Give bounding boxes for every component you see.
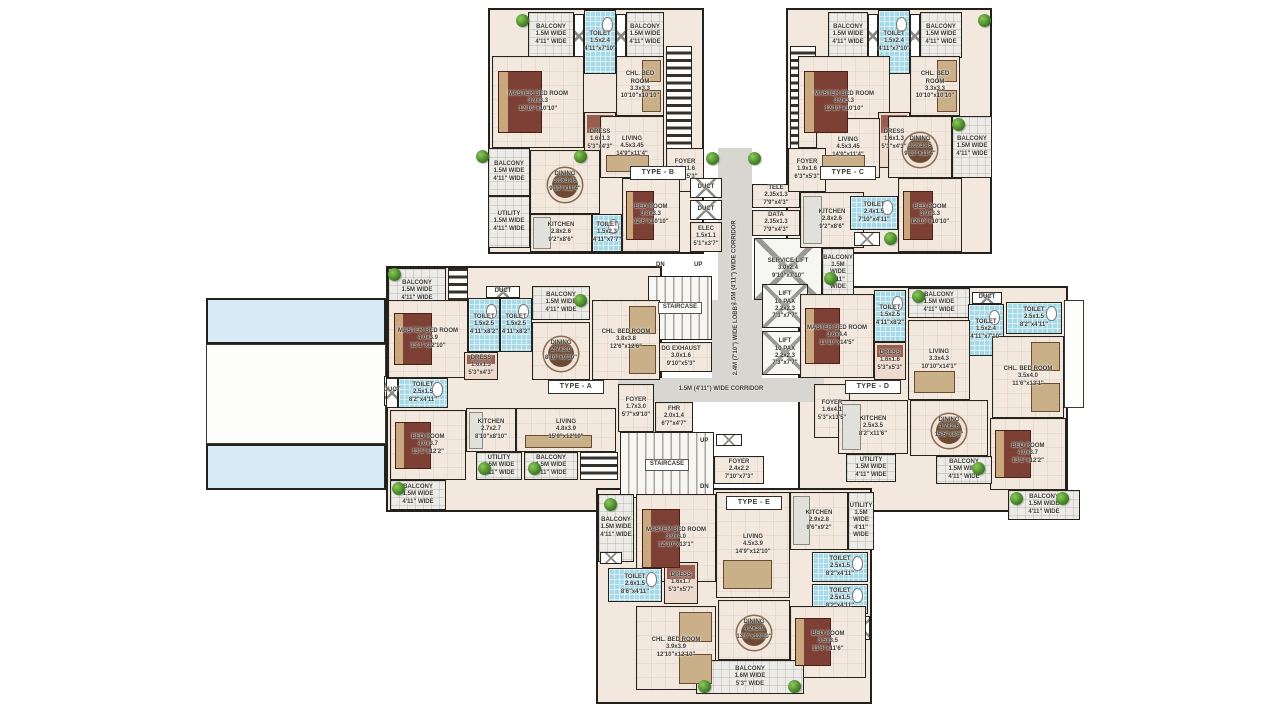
d-toilet-2-label: TOILET 1.5x2.4 4'11"x7'10" xyxy=(970,319,1002,341)
e-dress-label: DRESS 1.6x1.7 5'3"x5'7" xyxy=(668,572,693,594)
planter-icon xyxy=(476,150,489,163)
d-bed-room: BED ROOM 4.0x3.7 13'1"x12'2" xyxy=(990,418,1066,490)
c-master-bed-room-label: MASTER BED ROOM 3.9x3.3 12'10"x10'10" xyxy=(814,91,874,113)
a-bed-room: BED ROOM 4.0x3.7 13'1"x12'2" xyxy=(390,410,466,480)
d-toilet-1: TOILET 1.5x2.5 4'11"x8'2" xyxy=(874,290,906,342)
core-foyer-e-label: FOYER 2.4x2.2 7'10"x7'3" xyxy=(725,459,754,481)
a-balcony-bottom-2-label: BALCONY 1.5M WIDE 4'11" WIDE xyxy=(402,484,433,506)
planter-icon xyxy=(912,290,925,303)
a-chl-bed-room-label: CHL. BED ROOM 3.8x3.8 12'6"x12'6" xyxy=(602,329,651,351)
d-kitchen: KITCHEN 2.5x3.5 8'2"x11'6" xyxy=(838,400,908,454)
c-bed-room-label: BED ROOM 3.9x3.3 12'10"x10'10" xyxy=(911,204,950,226)
a-dining-label: DINING 2.7x3.0 8'10"x9'10" xyxy=(545,340,577,362)
core-elec: ELEC 1.5x1.1 5'1"x3'7" xyxy=(690,222,722,252)
stair-direction-label: UP xyxy=(700,438,708,444)
core-lift-1-label: LIFT 10 PAX 2.2x2.3 7'3"x7'7" xyxy=(772,291,797,320)
a-foyer-label: FOYER 1.7x3.0 5'7"x9'10" xyxy=(622,397,651,419)
c-balcony-top-left-label: BALCONY 1.5M WIDE 4'11" WIDE xyxy=(832,24,863,46)
c-balcony-right-label: BALCONY 1.5M WIDE 4'11" WIDE xyxy=(956,136,987,158)
c-toilet-2-label: TOILET 2.4x1.5 7'10"x4'11" xyxy=(858,202,890,224)
a-stair-hatch xyxy=(580,452,618,480)
e-living-label: LIVING 4.5x3.9 14'9"x12'10" xyxy=(735,534,770,556)
a-duct-top: DUCT xyxy=(486,286,520,298)
d-foyer-label: FOYER 1.6x4.1 5'3"x13'5" xyxy=(818,400,847,422)
a-dining: DINING 2.7x3.0 8'10"x9'10" xyxy=(532,322,590,380)
e-toilet-left-label: TOILET 2.6x1.5 8'6"x4'11" xyxy=(621,574,649,596)
core-duct-3 xyxy=(716,434,742,446)
e-dress: DRESS 1.6x1.7 5'3"x5'7" xyxy=(664,562,698,604)
terrace-strip-bottom xyxy=(206,444,386,490)
c-balcony-top-right: BALCONY 1.5M WIDE 4'11" WIDE xyxy=(920,12,962,58)
d-living: LIVING 3.3x4.3 10'10"x14'1" xyxy=(908,320,970,400)
core-data: DATA 2.35x1.3 7'9"x4'3" xyxy=(752,210,800,236)
b-balcony-top-right: BALCONY 1.5M WIDE 4'11" WIDE xyxy=(626,12,664,58)
d-master-bed-room-label: MASTER BED ROOM 3.6x4.4 11'10"x14'5" xyxy=(807,325,867,347)
tag-type-d-label: TYPE - D xyxy=(857,383,890,392)
e-kitchen-label: KITCHEN 2.9x2.8 9'6"x9'2" xyxy=(806,510,833,532)
a-toilet-2-label: TOILET 1.5x2.5 4'11"x8'2" xyxy=(502,314,530,336)
c-balcony-top-right-label: BALCONY 1.5M WIDE 4'11" WIDE xyxy=(925,24,956,46)
stair-direction-label: DN xyxy=(700,484,709,490)
core-data-label: DATA 2.35x1.3 7'9"x4'3" xyxy=(763,212,788,234)
a-living-label: LIVING 4.8x3.9 15'9"x12'10" xyxy=(548,419,583,441)
planter-icon xyxy=(788,680,801,693)
c-toilet-2: TOILET 2.4x1.5 7'10"x4'11" xyxy=(850,196,898,230)
planter-icon xyxy=(824,272,837,285)
d-dining: DINING 4.7x2.6 15'5"x8'6" xyxy=(910,400,988,456)
d-duct-top-label: DUCT xyxy=(979,294,996,301)
d-toilet-1-label: TOILET 1.5x2.5 4'11"x8'2" xyxy=(876,305,904,327)
core-lift-2-label: LIFT 10 PAX 2.2x2.3 7'3"x7'7" xyxy=(772,338,797,367)
c-chl-bed-room: CHL. BED ROOM 3.3x3.3 10'10"x10'10" xyxy=(910,56,960,116)
planter-icon xyxy=(884,232,897,245)
b-escape-stair xyxy=(666,46,692,150)
terrace-strip-top xyxy=(206,298,386,344)
b-balcony-top-right-label: BALCONY 1.5M WIDE 4'11" WIDE xyxy=(629,24,660,46)
tag-type-a-label: TYPE - A xyxy=(560,383,593,392)
d-utility: UTILITY 1.5M WIDE 4'11" WIDE xyxy=(846,454,896,482)
planter-icon xyxy=(516,14,529,27)
stair-direction-label: UP xyxy=(694,262,702,268)
b-chl-bed-room: CHL. BED ROOM 3.3x3.3 10'10"x10'10" xyxy=(616,56,664,116)
d-bed-room-label: BED ROOM 4.0x3.7 13'1"x12'2" xyxy=(1012,443,1045,465)
a-kitchen-label: KITCHEN 2.7x2.7 8'10"x8'10" xyxy=(475,419,507,441)
e-toilet-left: TOILET 2.6x1.5 8'6"x4'11" xyxy=(608,568,662,602)
a-toilet-1: TOILET 1.5x2.5 4'11"x8'2" xyxy=(468,298,500,352)
b-kitchen-label: KITCHEN 2.8x2.6 9'2"x8'6" xyxy=(548,222,575,244)
a-foyer: FOYER 1.7x3.0 5'7"x9'10" xyxy=(618,384,654,432)
a-master-bed-room: MASTER BED ROOM 4.0x3.9 13'1"x12'10" xyxy=(388,300,468,378)
terrace-duct-label: DUCT xyxy=(384,387,401,394)
c-duct-2 xyxy=(910,14,920,58)
c-dining-label: DINING 3.0x3.45 9'10"x11'4" xyxy=(904,136,936,158)
a-balcony-top-2-label: BALCONY 1.5M WIDE 4'11" WIDE xyxy=(545,292,576,314)
a-toilet-3: TOILET 2.5x1.5 8'2"x4'11" xyxy=(398,378,448,408)
a-master-bed-room-label: MASTER BED ROOM 4.0x3.9 13'1"x12'10" xyxy=(398,328,458,350)
e-master-bed-room-label: MASTER BED ROOM 3.9x4.0 12'10"x13'1" xyxy=(646,527,706,549)
c-bed-room: BED ROOM 3.9x3.3 12'10"x10'10" xyxy=(898,178,962,252)
b-toilet-top: TOILET 1.5x2.4 4'11"x7'10" xyxy=(584,10,616,74)
core-fhr-label: FHR 2.0x1.4 6'7"x4'7" xyxy=(661,406,686,428)
c-duct-1 xyxy=(868,14,878,58)
floor-plan: DUCT1.5M (4'11") WIDE CORRIDOR2.4M (7'10… xyxy=(0,0,1280,720)
planter-icon xyxy=(706,152,719,165)
core-service-lift-label: SERVICE LIFT 3.0x2.4 9'10"x7'10" xyxy=(768,258,809,280)
e-utility: UTILITY 1.5M WIDE 4'11" WIDE xyxy=(848,492,874,550)
a-living: LIVING 4.8x3.9 15'9"x12'10" xyxy=(516,408,616,452)
wc-furniture-icon xyxy=(602,17,613,32)
d-toilet-3: TOILET 2.5x1.5 8'2"x4'11" xyxy=(1006,302,1062,334)
c-chl-bed-room-label: CHL. BED ROOM 3.3x3.3 10'10"x10'10" xyxy=(911,71,959,100)
b-bed-room-label: BED ROOM 3.8x3.3 12'6"x10'10" xyxy=(633,204,668,226)
b-duct-1 xyxy=(574,14,584,58)
b-master-bed-room-label: MASTER BED ROOM 3.9x3.3 12'10"x10'10" xyxy=(508,91,568,113)
a-balcony-top-1-label: BALCONY 1.5M WIDE 4'11" WIDE xyxy=(401,280,432,302)
c-living-label: LIVING 4.5x3.45 14'9"x11'4" xyxy=(832,137,864,159)
tag-type-b-label: TYPE - B xyxy=(642,169,675,178)
tag-type-e-label: TYPE - E xyxy=(738,499,770,508)
tag-type-d: TYPE - D xyxy=(845,380,901,394)
tag-type-e: TYPE - E xyxy=(726,496,782,510)
planter-icon xyxy=(1010,492,1023,505)
c-duct-3 xyxy=(854,232,880,246)
core-staircase-top-label: STAIRCASE xyxy=(658,302,702,313)
c-foyer-label: FOYER 1.9x1.6 6'3"x5'3" xyxy=(794,159,819,181)
tag-type-c-label: TYPE - C xyxy=(832,169,865,178)
d-balcony-bottom-2-label: BALCONY 1.5M WIDE 4'11" WIDE xyxy=(1028,494,1059,516)
b-toilet-2: TOILET 1.5x2.3 4'11"x7'7" xyxy=(592,214,622,252)
d-dress-label: DRESS 1.6x1.6 5'3"x5'3" xyxy=(877,350,902,372)
b-toilet-top-label: TOILET 1.5x2.4 4'11"x7'10" xyxy=(584,31,616,53)
d-utility-label: UTILITY 1.5M WIDE 4'11" WIDE xyxy=(855,457,886,479)
tag-type-a: TYPE - A xyxy=(548,380,604,394)
core-elec-label: ELEC 1.5x1.1 5'1"x3'7" xyxy=(693,226,718,248)
core-duct-2-label: DUCT xyxy=(698,206,715,213)
planter-icon xyxy=(574,150,587,163)
wc-furniture-icon xyxy=(896,17,907,32)
b-balcony-left-label: BALCONY 1.5M WIDE 4'11" WIDE xyxy=(493,161,524,183)
b-utility-label: UTILITY 1.5M WIDE 4'11" WIDE xyxy=(493,211,524,233)
planter-icon xyxy=(478,462,491,475)
planter-icon xyxy=(574,294,587,307)
e-toilet-right-2-label: TOILET 2.5x1.5 8'2"x4'11" xyxy=(826,588,854,610)
corridor-horizontal-label: 1.5M (4'11") WIDE CORRIDOR xyxy=(679,386,764,393)
b-master-bed-room: MASTER BED ROOM 3.9x3.3 12'10"x10'10" xyxy=(492,56,584,148)
planter-icon xyxy=(604,498,617,511)
core-duct-2: DUCT xyxy=(690,200,722,220)
core-duct-1: DUCT xyxy=(690,178,722,198)
e-toilet-right-1-label: TOILET 2.5x1.5 8'2"x4'11" xyxy=(826,556,854,578)
lobby-label: 2.4M (7'10") WIDE LOBBY xyxy=(733,302,740,375)
planter-icon xyxy=(528,462,541,475)
b-duct-2 xyxy=(616,14,626,58)
planter-icon xyxy=(972,462,985,475)
d-balcony-top-label: BALCONY 1.5M WIDE 4'11" WIDE xyxy=(923,292,954,314)
d-chl-bed-room-label: CHL. BED ROOM 3.5x4.0 11'6"x13'1" xyxy=(1004,366,1053,388)
a-bed-room-label: BED ROOM 4.0x3.7 13'1"x12'2" xyxy=(412,434,445,456)
e-toilet-right-1: TOILET 2.5x1.5 8'2"x4'11" xyxy=(812,552,868,582)
d-dining-label: DINING 4.7x2.6 15'5"x8'6" xyxy=(935,417,964,439)
b-living-label: LIVING 4.5x3.45 14'9"x11'4" xyxy=(616,136,648,158)
planter-icon xyxy=(388,268,401,281)
b-toilet-2-label: TOILET 1.5x2.3 4'11"x7'7" xyxy=(593,222,621,244)
b-chl-bed-room-label: CHL. BED ROOM 3.3x3.3 10'10"x10'10" xyxy=(617,71,663,100)
b-dress-label: DRESS 1.6x1.3 5'3"x4'3" xyxy=(587,129,612,151)
core-dg-exhaust-label: DG EXHAUST 3.0x1.6 9'10"x5'3" xyxy=(661,346,700,368)
c-balcony-top-left: BALCONY 1.5M WIDE 4'11" WIDE xyxy=(828,12,868,58)
b-dining-label: DINING 3.0x3.45 9'10"x11'4" xyxy=(549,171,581,193)
sofa-furniture-icon xyxy=(723,560,773,589)
e-kitchen: KITCHEN 2.9x2.8 9'6"x9'2" xyxy=(790,492,848,550)
a-toilet-3-label: TOILET 2.5x1.5 8'2"x4'11" xyxy=(409,382,437,404)
e-bed-room-label: BED ROOM 3.5x3.5 11'6"x11'6" xyxy=(812,631,845,653)
d-living-label: LIVING 3.3x4.3 10'10"x14'1" xyxy=(921,349,956,371)
planter-icon xyxy=(1056,492,1069,505)
planter-icon xyxy=(952,118,965,131)
d-chl-bed-room: CHL. BED ROOM 3.5x4.0 11'6"x13'1" xyxy=(992,336,1064,418)
c-dress-label: DRESS 1.6x1.3 5'3"x4'3" xyxy=(881,129,906,151)
c-toilet-top-label: TOILET 1.5x2.4 4'11"x7'10" xyxy=(878,31,910,53)
d-kitchen-label: KITCHEN 2.5x3.5 8'2"x11'6" xyxy=(859,416,887,438)
e-chl-bed-room: CHL. BED ROOM 3.9x3.9 12'10"x12'10" xyxy=(636,606,716,690)
a-dress-label: DRESS 1.6x1.3 5'3"x4'3" xyxy=(468,355,493,377)
b-balcony-left: BALCONY 1.5M WIDE 4'11" WIDE xyxy=(488,148,530,196)
b-kitchen: KITCHEN 2.8x2.6 9'2"x8'6" xyxy=(530,214,592,252)
d-duct-top: DUCT xyxy=(972,292,1002,304)
e-duct-left xyxy=(600,552,622,564)
terrace-mid xyxy=(206,344,386,444)
b-balcony-top-left-label: BALCONY 1.5M WIDE 4'11" WIDE xyxy=(535,24,566,46)
e-chl-bed-room-label: CHL. BED ROOM 3.9x3.9 12'10"x12'10" xyxy=(652,637,701,659)
e-balcony-left-label: BALCONY 1.5M WIDE 4'11" WIDE xyxy=(600,517,631,539)
core-duct-1-label: DUCT xyxy=(698,184,715,191)
core-staircase-bottom-label: STAIRCASE xyxy=(645,459,689,470)
planter-icon xyxy=(392,482,405,495)
d-toilet-3-label: TOILET 2.5x1.5 8'2"x4'11" xyxy=(1020,307,1048,329)
e-dining-label: DINING 4.2x3.9 13'9"x12'10" xyxy=(736,619,771,641)
b-utility: UTILITY 1.5M WIDE 4'11" WIDE xyxy=(488,196,530,248)
planter-icon xyxy=(748,152,761,165)
a-toilet-1-label: TOILET 1.5x2.5 4'11"x8'2" xyxy=(470,314,498,336)
planter-icon xyxy=(978,14,991,27)
sofa-furniture-icon xyxy=(914,371,956,393)
core-tele-label: TELE 2.35x1.3 7'9"x4'3" xyxy=(763,185,788,207)
c-kitchen-label: KITCHEN 2.8x2.6 9'2"x8'6" xyxy=(819,209,846,231)
e-dining: DINING 4.2x3.9 13'9"x12'10" xyxy=(718,600,790,660)
core-foyer-e: FOYER 2.4x2.2 7'10"x7'3" xyxy=(714,456,764,484)
a-dress: DRESS 1.6x1.3 5'3"x4'3" xyxy=(464,352,498,380)
d-terrace-right xyxy=(1064,300,1084,408)
tag-type-c: TYPE - C xyxy=(820,166,876,180)
a-kitchen: KITCHEN 2.7x2.7 8'10"x8'10" xyxy=(466,408,516,452)
planter-icon xyxy=(698,680,711,693)
b-bed-room: BED ROOM 3.8x3.3 12'6"x10'10" xyxy=(622,178,680,252)
d-dress: DRESS 1.6x1.6 5'3"x5'3" xyxy=(874,342,906,380)
a-chl-bed-room: CHL. BED ROOM 3.8x3.8 12'6"x12'6" xyxy=(592,300,660,380)
d-master-bed-room: MASTER BED ROOM 3.6x4.4 11'10"x14'5" xyxy=(800,294,874,378)
e-utility-label: UTILITY 1.5M WIDE 4'11" WIDE xyxy=(849,503,873,540)
b-dining: DINING 3.0x3.45 9'10"x11'4" xyxy=(530,150,600,214)
stair-direction-label: DN xyxy=(656,262,665,268)
core-fhr: FHR 2.0x1.4 6'7"x4'7" xyxy=(655,402,693,432)
b-balcony-top-left: BALCONY 1.5M WIDE 4'11" WIDE xyxy=(528,12,574,58)
e-balcony-bottom-label: BALCONY 1.6M WIDE 5'3" WIDE xyxy=(735,666,766,688)
lobby: 2.4M (7'10") WIDE LOBBY xyxy=(712,300,762,378)
corridor-vertical-label: 1.5M (4'11") WIDE CORRIDOR xyxy=(731,221,738,306)
a-duct-top-label: DUCT xyxy=(495,288,512,295)
tag-type-b: TYPE - B xyxy=(630,166,686,180)
a-toilet-2: TOILET 1.5x2.5 4'11"x8'2" xyxy=(500,298,532,352)
